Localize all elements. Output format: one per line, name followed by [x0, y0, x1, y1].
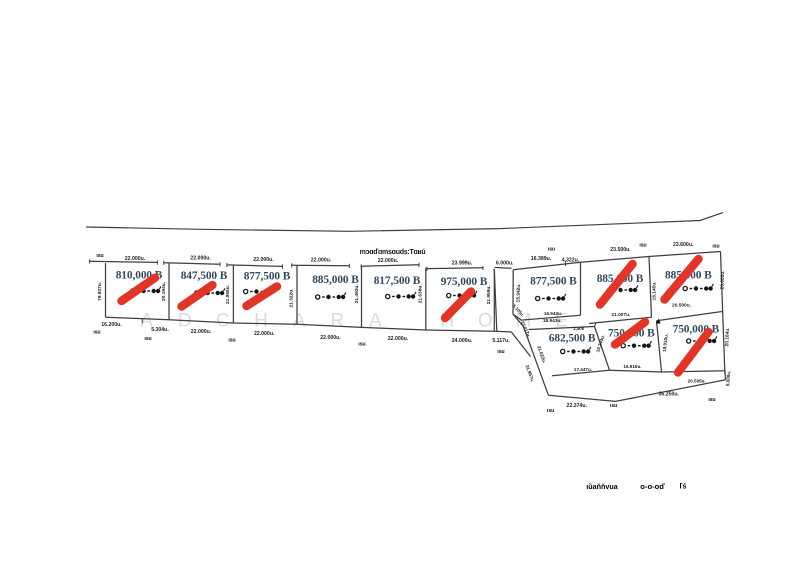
svg-text:22.000u.: 22.000u.	[320, 335, 341, 341]
svg-text:A: A	[293, 311, 306, 332]
svg-text:5.304u.: 5.304u.	[151, 327, 169, 333]
svg-text:ısu: ısu	[358, 342, 365, 348]
svg-text:16.389u.: 16.389u.	[531, 256, 552, 262]
svg-text:ıŭaňňvuа: ıŭaňňvuа	[586, 482, 619, 491]
svg-text:ısu: ısu	[547, 408, 554, 414]
svg-text:ısu: ısu	[144, 336, 151, 342]
svg-text:21.007u.: 21.007u.	[611, 312, 630, 318]
svg-text:ısu: ısu	[497, 349, 504, 355]
svg-text:ısu: ısu	[96, 253, 103, 259]
svg-text:20.164u.: 20.164u.	[724, 327, 731, 346]
svg-text:975,000 B: 975,000 B	[441, 276, 488, 288]
svg-text:23.600u.: 23.600u.	[673, 242, 694, 248]
svg-text:ısu: ısu	[708, 397, 715, 403]
svg-text:15.942u.: 15.942u.	[515, 283, 522, 302]
svg-text:ısu: ısu	[548, 247, 555, 253]
svg-text:22.000u.: 22.000u.	[311, 257, 332, 263]
svg-text:20.000u.: 20.000u.	[719, 270, 726, 289]
svg-text:21.493u.: 21.493u.	[354, 284, 360, 303]
svg-text:ısu: ısu	[712, 244, 719, 250]
svg-text:847,500 B: 847,500 B	[181, 270, 228, 282]
svg-text:18.145u.: 18.145u.	[651, 282, 657, 301]
svg-text:mɔɑďɑmsɑuds:Tɑʁú: mɔɑďɑmsɑuds:Tɑʁú	[360, 249, 426, 256]
svg-text:o-o-oď: o-o-oď	[640, 482, 665, 491]
svg-text:ısu: ısu	[228, 338, 235, 344]
svg-text:22.000u.: 22.000u.	[190, 256, 211, 262]
svg-text:O: O	[478, 311, 493, 332]
svg-text:36.250u.: 36.250u.	[659, 391, 680, 397]
svg-text:22.000u.: 22.000u.	[191, 329, 212, 335]
svg-text:17.447u.: 17.447u.	[574, 367, 592, 372]
svg-text:22.000u.: 22.000u.	[378, 258, 399, 264]
svg-text:682,500 B: 682,500 B	[549, 332, 596, 344]
svg-text:22.000u.: 22.000u.	[125, 256, 146, 262]
svg-text:877,500 B: 877,500 B	[244, 271, 291, 283]
svg-text:ısu: ısu	[639, 243, 646, 249]
svg-text:21.959u.: 21.959u.	[486, 285, 492, 304]
svg-text:4.322u.: 4.322u.	[562, 257, 580, 263]
svg-text:20.500u.: 20.500u.	[672, 302, 691, 308]
svg-text:22.000u.: 22.000u.	[253, 257, 274, 263]
svg-text:16.200u.: 16.200u.	[101, 322, 122, 328]
svg-text:22.000u.: 22.000u.	[254, 331, 275, 337]
svg-text:817,500 B: 817,500 B	[374, 275, 421, 287]
svg-text:ľś: ľś	[680, 482, 687, 491]
svg-text:5.117u.: 5.117u.	[492, 338, 510, 344]
svg-text:750,000 B: 750,000 B	[673, 324, 720, 336]
svg-text:20.194u.: 20.194u.	[161, 282, 167, 301]
svg-text:ısu: ısu	[93, 330, 100, 336]
svg-text:22.000u.: 22.000u.	[388, 336, 409, 342]
svg-text:C: C	[216, 311, 230, 332]
svg-text:R: R	[330, 311, 344, 332]
svg-text:18.943u.: 18.943u.	[543, 318, 562, 324]
svg-text:885,000 B: 885,000 B	[312, 274, 359, 286]
svg-text:2,500: 2,500	[573, 326, 585, 331]
svg-text:23.999u.: 23.999u.	[452, 260, 473, 266]
svg-text:6.000u.: 6.000u.	[496, 260, 514, 266]
svg-text:24.000u.: 24.000u.	[452, 338, 473, 344]
svg-text:21.322u.: 21.322u.	[288, 289, 294, 308]
svg-text:H: H	[254, 311, 268, 332]
svg-text:877,500 B: 877,500 B	[530, 276, 577, 288]
svg-text:21.968u.: 21.968u.	[225, 285, 231, 304]
svg-text:16.916u.: 16.916u.	[623, 364, 641, 369]
svg-text:21.638u.: 21.638u.	[418, 284, 424, 303]
svg-text:20.505u.: 20.505u.	[688, 379, 706, 384]
svg-text:23.500u.: 23.500u.	[610, 247, 631, 253]
svg-text:ısu: ısu	[610, 403, 617, 409]
svg-text:16.943u.: 16.943u.	[544, 311, 562, 316]
svg-text:79.937u.: 79.937u.	[97, 282, 103, 301]
svg-text:22.374u.: 22.374u.	[567, 403, 588, 409]
